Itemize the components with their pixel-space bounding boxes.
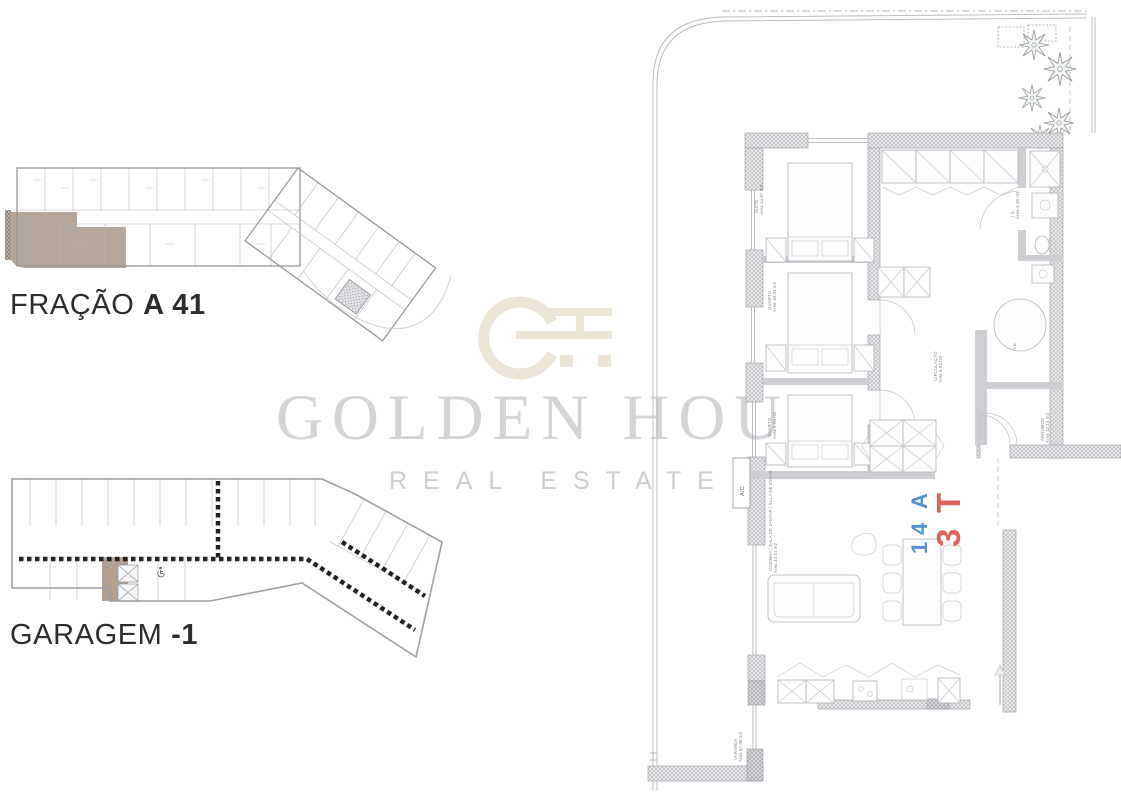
decor-plant — [852, 533, 877, 555]
bedroom-doors — [880, 300, 915, 425]
ac-label: A/C — [740, 486, 746, 496]
is-main-label: I.S. — [1012, 342, 1017, 349]
building-floor-plan — [5, 158, 475, 358]
quarto2-area: Área 9,98 m2 — [772, 411, 777, 439]
unit-type-char: T — [930, 493, 967, 513]
lane-markings — [19, 481, 425, 630]
unit-badge: T 3 A 4 1 — [907, 493, 967, 554]
bedroom1-bed — [766, 273, 874, 373]
page: GOLDEN HOUR REAL ESTATE FRAÇÃO A 41 — [0, 0, 1121, 806]
kitchen — [777, 663, 960, 703]
brand-logo-icon — [478, 294, 638, 399]
unit-type-char: 3 — [930, 529, 967, 547]
plant-icons — [1019, 30, 1077, 149]
arrumos-door — [985, 413, 1017, 445]
is-suite-area: Área 4,48 m2 — [1015, 191, 1020, 219]
suite-bed — [766, 163, 874, 262]
highlight-unit-a41 — [10, 212, 126, 268]
parking-stalls — [23, 479, 315, 600]
unit-code-char: A — [907, 493, 932, 509]
main-bathroom — [994, 265, 1054, 351]
suite-wardrobe — [882, 150, 1018, 195]
bedroom2-bed — [766, 395, 874, 467]
quarto1-area: Área 10,34 m2 — [772, 281, 777, 312]
building-wing — [245, 168, 435, 341]
unit-code-char: 1 — [907, 542, 932, 554]
bedroom2-wardrobe — [862, 420, 944, 472]
apartment-floor-plan: SUITE Área 14,87 m2 QUARTO Área 10,34 m2… — [640, 5, 1121, 800]
accessible-parking-icon — [158, 567, 165, 577]
brand-logo-h — [516, 308, 612, 367]
garage-floor-plan — [5, 462, 465, 672]
suite-area: Área 14,87 m2 — [759, 184, 764, 215]
unit-code-char: 4 — [907, 522, 932, 535]
hall-wardrobe — [878, 267, 930, 297]
varanda-area: Área 67,00 m2 — [738, 731, 743, 762]
ac-niche — [733, 458, 750, 508]
living-area: Área 34,51 m2 — [773, 542, 778, 573]
sofa — [768, 575, 860, 622]
site-edge-hatch — [5, 210, 11, 260]
terrace-boundary — [650, 11, 1095, 791]
circulacao-area: Área 5,92 m2 — [938, 355, 943, 383]
arrumos-area: Área 12,14 m2 — [1045, 412, 1050, 443]
